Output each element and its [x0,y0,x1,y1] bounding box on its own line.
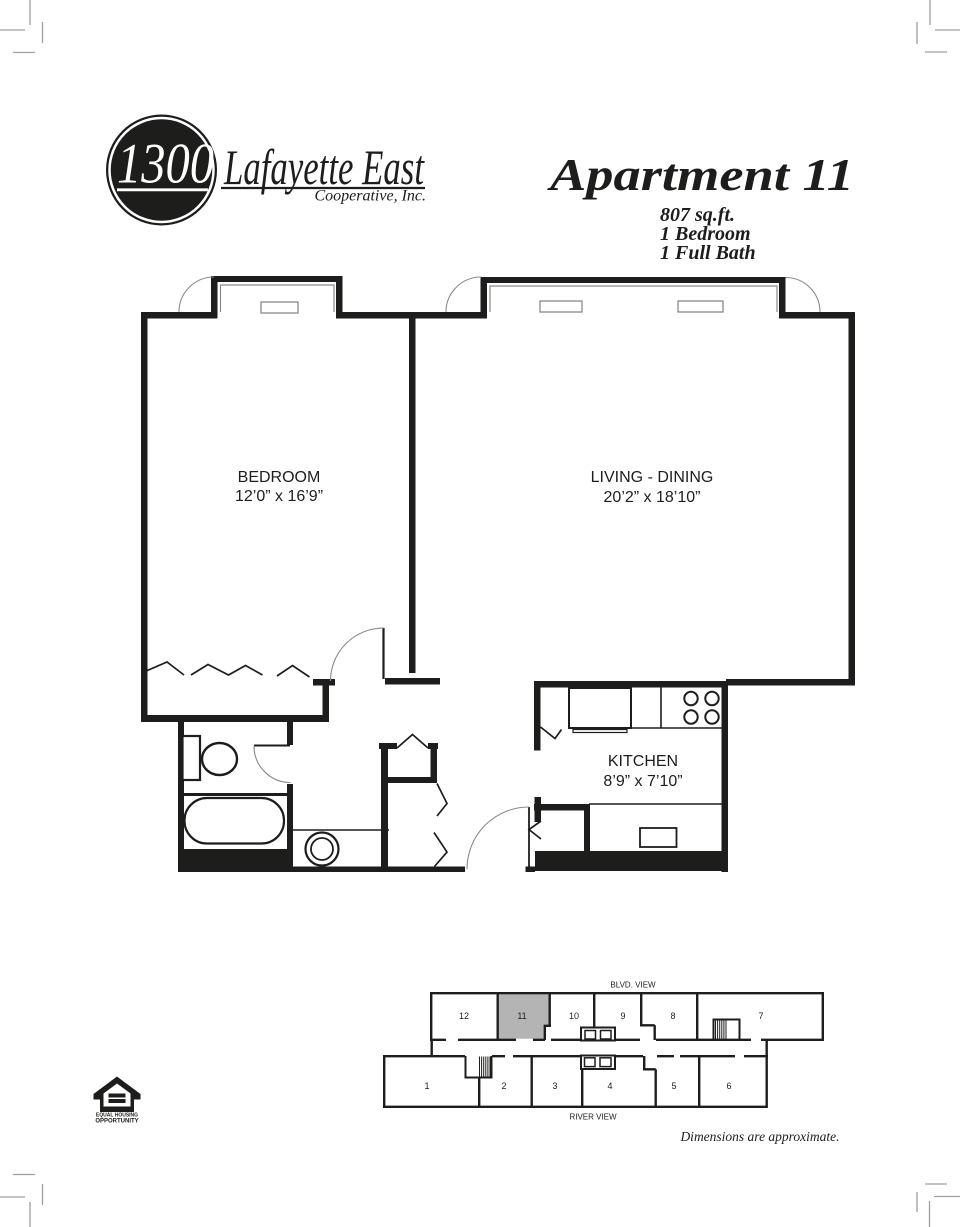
svg-text:6: 6 [726,1081,731,1091]
svg-text:5: 5 [671,1081,676,1091]
svg-text:12’0” x 16’9”: 12’0” x 16’9” [235,488,323,505]
svg-text:8: 8 [670,1011,675,1021]
svg-text:Apartment 11: Apartment 11 [546,149,854,200]
svg-text:2: 2 [501,1081,506,1091]
svg-text:4: 4 [607,1081,612,1091]
svg-text:Dimensions are approximate.: Dimensions are approximate. [679,1129,839,1144]
svg-text:Cooperative, Inc.: Cooperative, Inc. [314,188,426,205]
svg-text:BEDROOM: BEDROOM [238,469,321,486]
svg-text:BLVD. VIEW: BLVD. VIEW [610,981,656,990]
svg-text:1: 1 [424,1081,429,1091]
svg-text:1300: 1300 [117,133,214,196]
svg-text:9: 9 [620,1011,625,1021]
svg-text:KITCHEN: KITCHEN [608,753,678,770]
svg-text:LIVING - DINING: LIVING - DINING [591,469,714,486]
svg-text:3: 3 [552,1081,557,1091]
svg-text:OPPORTUNITY: OPPORTUNITY [95,1119,138,1125]
svg-text:11: 11 [517,1011,526,1021]
svg-text:7: 7 [758,1011,763,1021]
svg-text:10: 10 [569,1011,579,1021]
svg-text:20’2” x 18’10”: 20’2” x 18’10” [604,489,701,506]
svg-text:1 Full Bath: 1 Full Bath [660,242,756,264]
svg-text:RIVER VIEW: RIVER VIEW [569,1113,617,1122]
svg-text:8’9” x 7’10”: 8’9” x 7’10” [603,773,682,790]
svg-text:12: 12 [459,1011,469,1021]
